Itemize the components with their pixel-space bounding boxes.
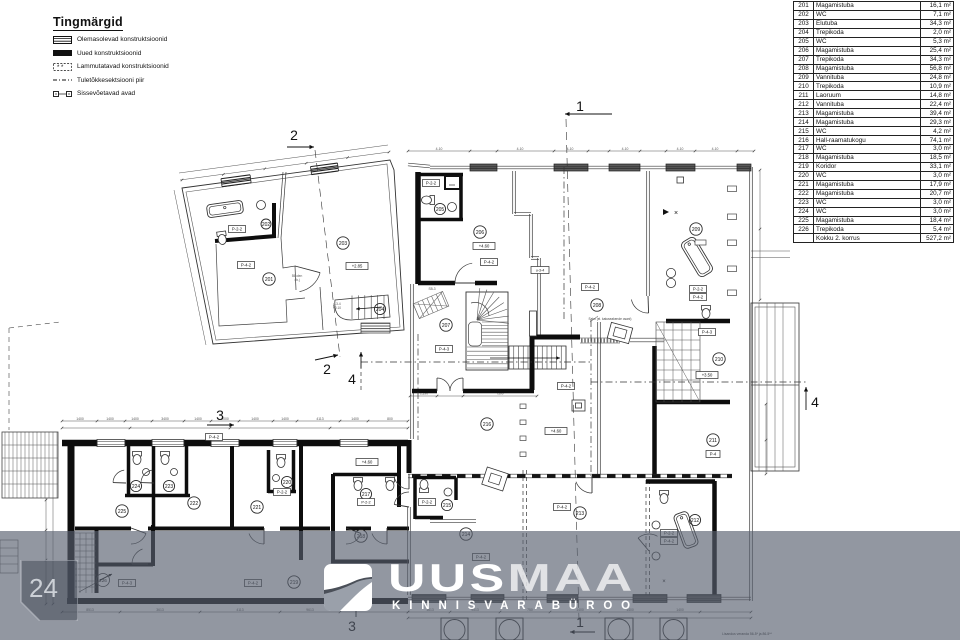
svg-text:Sahv (el. katuseakende osani): Sahv (el. katuseakende osani) bbox=[589, 317, 632, 321]
svg-text:+3.50: +3.50 bbox=[702, 373, 713, 378]
svg-text:223: 223 bbox=[165, 484, 174, 490]
svg-text:P-2-2: P-2-2 bbox=[361, 501, 370, 505]
svg-text:P-4-2: P-4-2 bbox=[693, 295, 704, 300]
svg-text:224: 224 bbox=[132, 484, 141, 490]
svg-text:P-2-2: P-2-2 bbox=[693, 287, 704, 292]
svg-text:225: 225 bbox=[118, 509, 127, 515]
svg-text:P-2-2: P-2-2 bbox=[422, 500, 433, 505]
svg-text:1400: 1400 bbox=[131, 417, 139, 421]
svg-text:P-4-2: P-4-2 bbox=[561, 384, 572, 389]
svg-text:212: 212 bbox=[691, 518, 700, 524]
svg-text:3400: 3400 bbox=[161, 417, 169, 421]
svg-text:24: 24 bbox=[29, 573, 58, 603]
svg-text:221: 221 bbox=[253, 505, 262, 511]
svg-text:1400: 1400 bbox=[281, 417, 289, 421]
svg-text:+2.85: +2.85 bbox=[352, 264, 363, 269]
svg-text:P-4-2: P-4-2 bbox=[484, 260, 495, 265]
svg-text:2: 2 bbox=[290, 127, 298, 143]
svg-text:4113: 4113 bbox=[316, 417, 323, 421]
svg-text:211: 211 bbox=[709, 438, 717, 444]
svg-text:207: 207 bbox=[442, 323, 451, 329]
svg-text:4-10: 4-10 bbox=[517, 147, 524, 151]
svg-text:P-2-2: P-2-2 bbox=[232, 227, 243, 232]
svg-text:P-4-2: P-4-2 bbox=[585, 285, 596, 290]
svg-text:4: 4 bbox=[811, 394, 819, 410]
svg-text:P-4-2: P-4-2 bbox=[557, 505, 568, 510]
svg-text:208: 208 bbox=[593, 303, 602, 309]
svg-text:+4.60: +4.60 bbox=[479, 244, 490, 249]
svg-text:3: 3 bbox=[216, 407, 224, 423]
svg-text:1400: 1400 bbox=[251, 417, 259, 421]
svg-text:4-10: 4-10 bbox=[622, 147, 629, 151]
svg-text:P-4-2: P-4-2 bbox=[241, 263, 252, 268]
svg-text:P-4: P-4 bbox=[710, 452, 717, 457]
svg-text:2: 2 bbox=[323, 361, 331, 377]
svg-text:1400: 1400 bbox=[76, 417, 84, 421]
svg-text:4-10: 4-10 bbox=[567, 147, 574, 151]
svg-text:217: 217 bbox=[362, 492, 371, 498]
svg-text:215: 215 bbox=[443, 503, 452, 509]
svg-text:800: 800 bbox=[387, 417, 393, 421]
svg-text:+4.60: +4.60 bbox=[362, 460, 373, 465]
svg-text:210: 210 bbox=[715, 357, 724, 363]
svg-text:4b.j: 4b.j bbox=[294, 278, 299, 282]
svg-text:204: 204 bbox=[376, 307, 385, 313]
svg-text:4-10: 4-10 bbox=[712, 147, 719, 151]
svg-text:P-4-3: P-4-3 bbox=[439, 347, 450, 352]
svg-text:4-10: 4-10 bbox=[677, 147, 684, 151]
svg-text:209: 209 bbox=[692, 227, 701, 233]
svg-text:1: 1 bbox=[576, 98, 584, 114]
svg-text:222: 222 bbox=[190, 501, 199, 507]
svg-text:1400: 1400 bbox=[351, 417, 359, 421]
svg-text:4-10: 4-10 bbox=[436, 147, 443, 151]
svg-text:P-4-3: P-4-3 bbox=[702, 330, 713, 335]
svg-text:202: 202 bbox=[262, 222, 271, 228]
svg-text:u-3-4: u-3-4 bbox=[536, 269, 544, 273]
svg-text:1400: 1400 bbox=[106, 417, 114, 421]
svg-text:* *: * * bbox=[57, 65, 64, 71]
svg-text:205: 205 bbox=[436, 207, 445, 213]
svg-text:P-4-2: P-4-2 bbox=[209, 435, 220, 440]
svg-text:216: 216 bbox=[483, 422, 492, 428]
svg-text:+4.60: +4.60 bbox=[551, 429, 562, 434]
svg-text:1400: 1400 bbox=[194, 417, 202, 421]
svg-text:4: 4 bbox=[348, 371, 356, 387]
svg-text:220: 220 bbox=[283, 480, 292, 486]
svg-text:SB-3: SB-3 bbox=[428, 287, 435, 291]
svg-text:×: × bbox=[674, 210, 678, 217]
svg-text:206: 206 bbox=[476, 230, 485, 236]
svg-text:213: 213 bbox=[576, 511, 585, 517]
svg-text:P-2-2: P-2-2 bbox=[277, 490, 288, 495]
svg-text:203: 203 bbox=[339, 241, 348, 247]
svg-text:P-2-2: P-2-2 bbox=[426, 181, 437, 186]
svg-text:201: 201 bbox=[265, 277, 274, 283]
